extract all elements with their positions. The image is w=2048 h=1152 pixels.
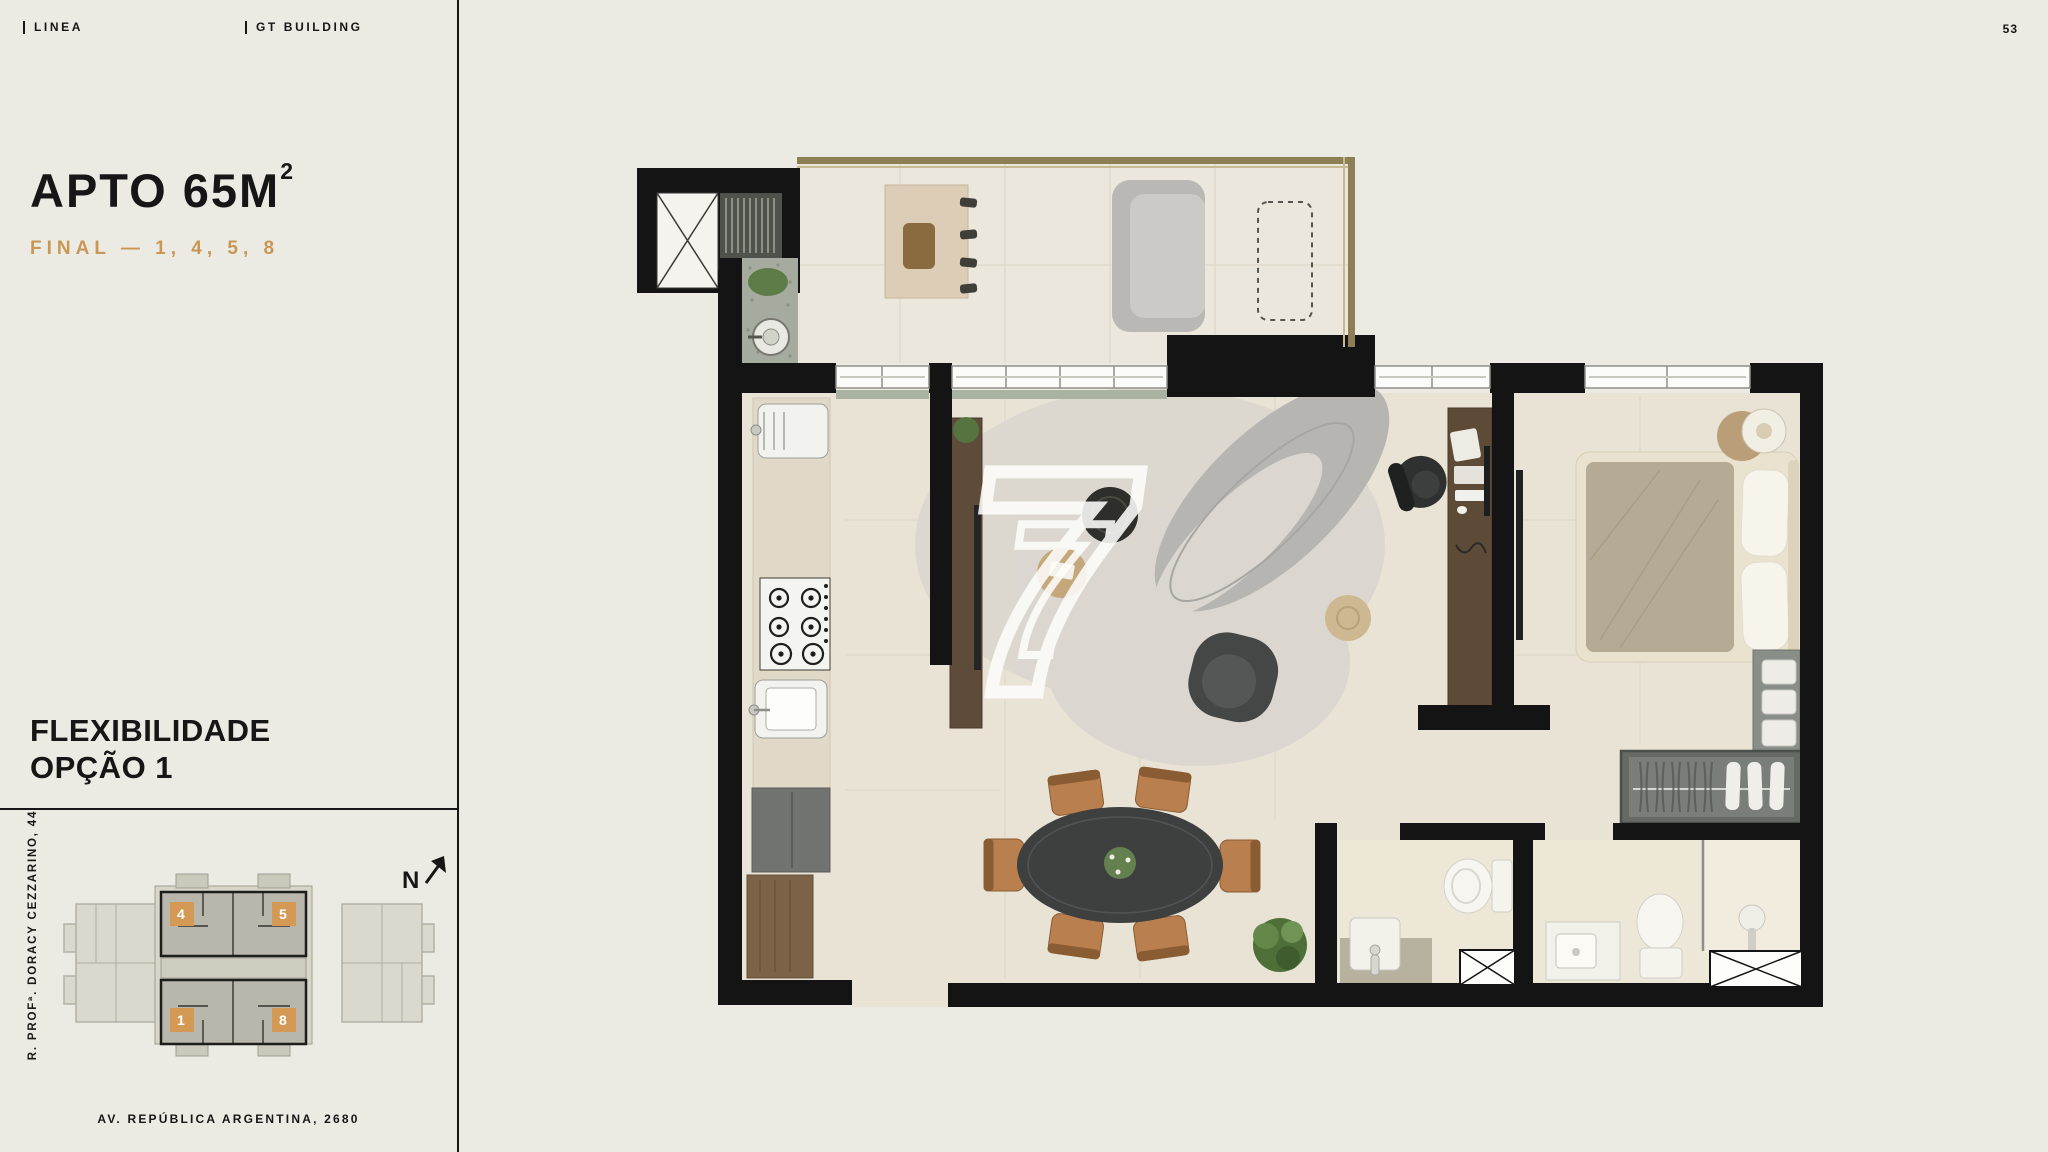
sidebar-divider	[0, 808, 457, 810]
mouse-icon	[1457, 506, 1467, 514]
lamp-center	[1756, 423, 1772, 439]
shower-fixture-icon	[1739, 905, 1765, 931]
wall-living-bedroom	[1492, 363, 1514, 727]
wardrobe	[1621, 751, 1802, 823]
sink-basin	[766, 688, 816, 730]
kitchen-sink-top	[758, 404, 828, 458]
brand-bar-icon	[23, 21, 25, 34]
wall-bathroom1-top	[1400, 823, 1513, 840]
flexibility-line2: OPÇÃO 1	[30, 749, 271, 786]
brochure-page: { "header": { "brand": "LINEA", "buildin…	[0, 0, 2048, 1152]
street-label-bottom: AV. REPÚBLICA ARGENTINA, 2680	[0, 1112, 457, 1126]
apartment-title-superscript: 2	[280, 158, 293, 184]
sill-sliding-door	[952, 390, 1167, 399]
sill-kitchen-door	[836, 390, 929, 399]
brand-label: LINEA	[34, 20, 83, 34]
flexibility-title: FLEXIBILIDADE OPÇÃO 1	[30, 712, 271, 786]
monitor-icon	[1484, 446, 1490, 516]
wall-bathroom1-left	[1315, 823, 1337, 1005]
bed-duvet	[1586, 462, 1734, 652]
shower-fixture-stem	[1748, 928, 1756, 952]
headboard	[1788, 460, 1799, 656]
unit-chip-8-label: 8	[279, 1012, 287, 1028]
bathroom1-faucet-icon	[1370, 945, 1380, 955]
wall-bottom-left	[718, 980, 852, 1005]
pillow-1	[1741, 469, 1790, 557]
balcony-sofa-seat	[1130, 194, 1205, 318]
cooktop	[760, 578, 830, 670]
unit-chip-4-label: 4	[177, 906, 185, 922]
wall-right	[1800, 363, 1823, 1005]
toilet1-tank	[1492, 860, 1512, 912]
page-number: 53	[2003, 22, 2018, 36]
pillow-2	[1740, 561, 1789, 651]
flexibility-line1: FLEXIBILIDADE	[30, 712, 271, 749]
white-garments	[1725, 762, 1785, 810]
balcony-floor	[797, 163, 1348, 363]
bedroom-tv-icon	[1516, 470, 1523, 640]
keyboard-icon	[1455, 490, 1485, 501]
building-keyplan: 4 5 1 8	[58, 856, 440, 1068]
building-label: GT BUILDING	[256, 20, 363, 34]
toilet2-tank	[1640, 948, 1682, 978]
wall-bottom	[948, 983, 1823, 1007]
building-bar-icon	[245, 21, 247, 34]
bathroom1-faucet-stem	[1371, 955, 1379, 975]
unit-chip-1-label: 1	[177, 1012, 185, 1028]
kitchen-wood-cabinet	[747, 875, 813, 978]
building-logo: GT BUILDING	[245, 20, 363, 34]
paper-on-desk	[1450, 428, 1482, 462]
keyplan-core	[161, 958, 306, 978]
bathroom2-faucet-icon	[1572, 948, 1580, 956]
apartment-title: APTO 65M2	[30, 158, 293, 218]
apartment-subtitle: FINAL — 1, 4, 5, 8	[30, 238, 279, 260]
pouf	[1325, 595, 1371, 641]
laptop-icon	[1454, 466, 1485, 484]
street-label-side: R. PROFª. DORACY CEZZARINO, 44	[27, 810, 39, 1060]
unit-chip-5-label: 5	[279, 906, 287, 922]
entry-threshold	[852, 980, 948, 1007]
faucet-top-icon	[751, 425, 761, 435]
wall-kitchen-living	[930, 393, 952, 665]
panel-divider	[457, 0, 459, 1152]
balcony-sink-drain	[763, 329, 779, 345]
brand-logo: LINEA	[23, 20, 83, 34]
balcony-plant-icon	[748, 268, 788, 296]
balcony-table-tray	[903, 223, 935, 269]
wall-bathroom2-top	[1613, 823, 1800, 840]
wall-corridor-stub	[1418, 705, 1550, 730]
shelf-bins	[1762, 660, 1796, 746]
table-centerpiece-icon	[1104, 847, 1136, 879]
floor-plant	[1253, 918, 1307, 972]
toilet2-bowl	[1637, 894, 1683, 950]
plant-on-cabinet-icon	[953, 417, 979, 443]
apartment-floorplan: 7 7	[600, 140, 1880, 1060]
